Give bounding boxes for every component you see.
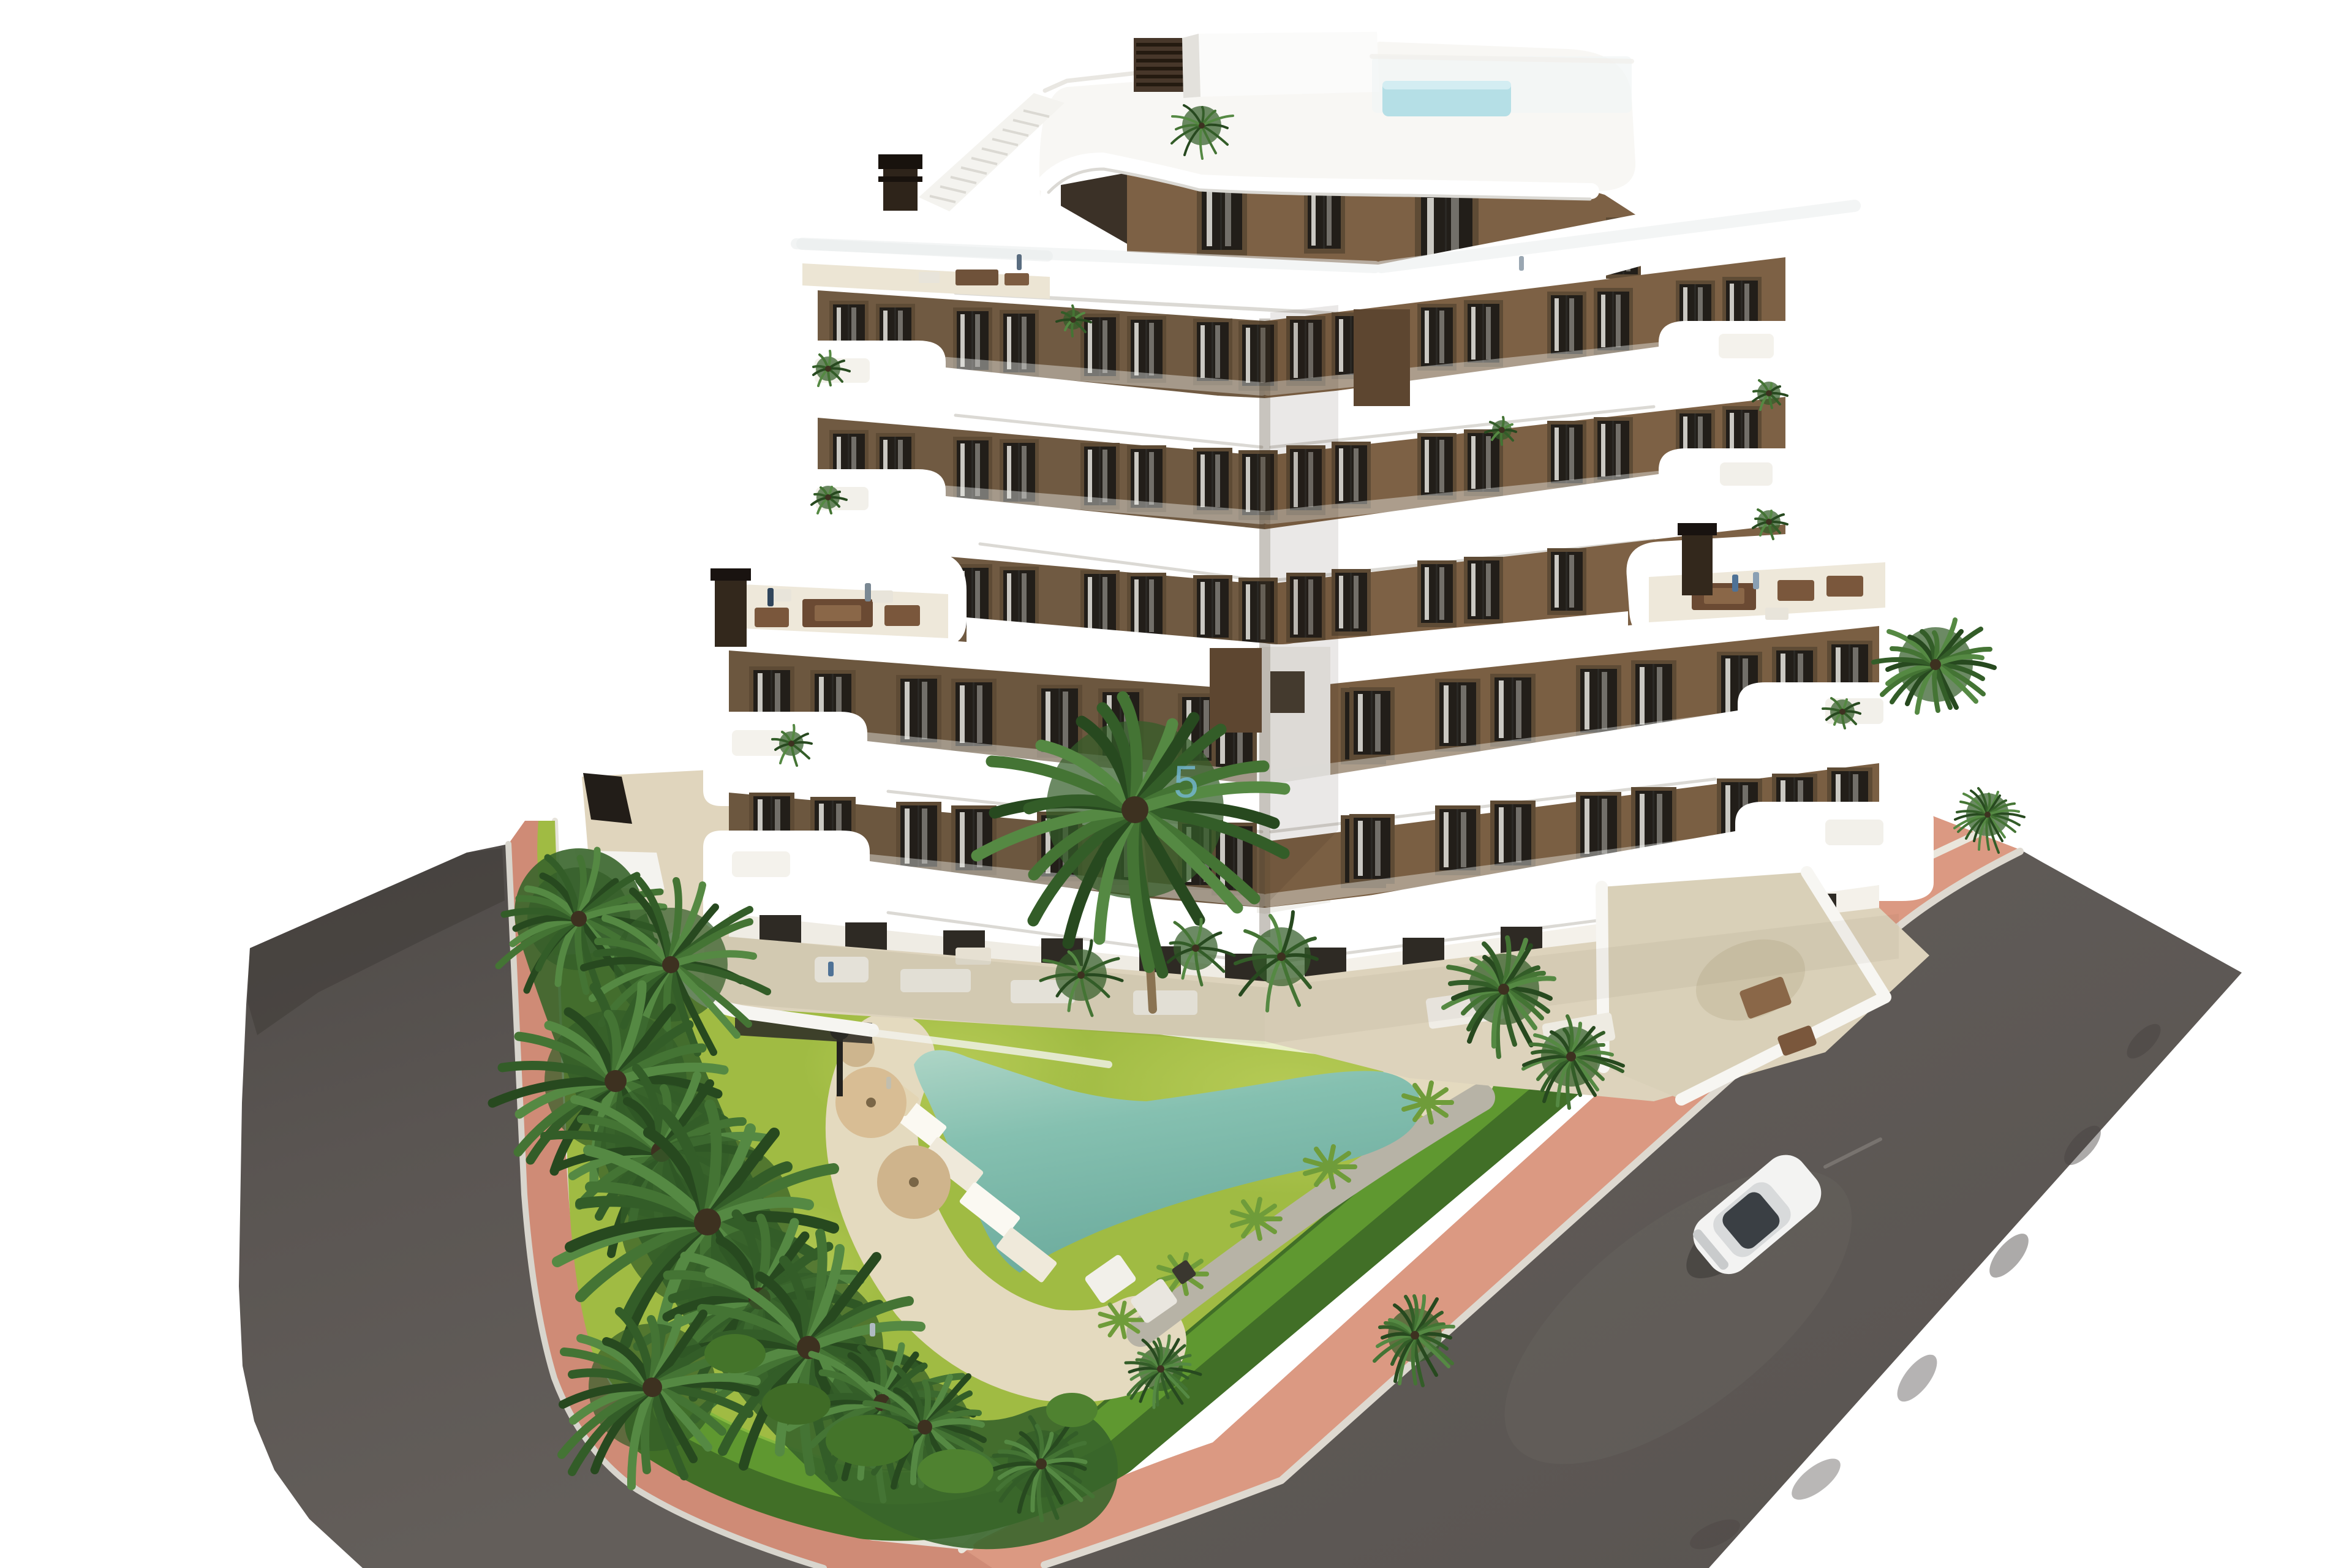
svg-text:5: 5 [1174,756,1199,807]
